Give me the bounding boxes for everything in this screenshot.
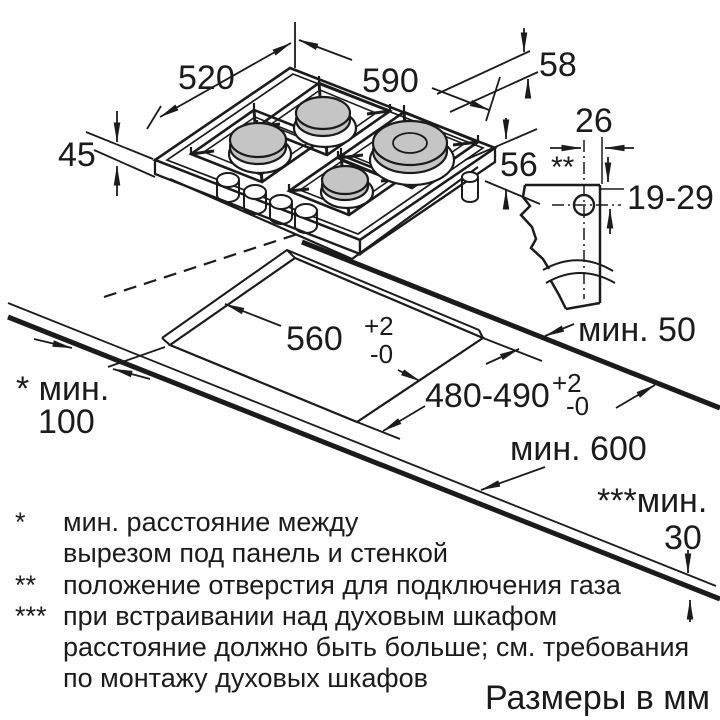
cutout-ext-right <box>483 338 542 361</box>
dim-line-min600b <box>481 467 545 490</box>
dim-line-480b <box>486 349 519 364</box>
label-hob-body-height: 45 <box>58 136 96 174</box>
footnote-3-line-1: при встраивании над духовым шкафом <box>63 601 557 631</box>
label-min-oven-clearance: ***мин. <box>597 482 707 520</box>
dim-line-480a <box>383 406 425 431</box>
dim-line-560a <box>225 304 281 326</box>
installation-diagram: 520 590 58 26 ** 19-29 56 45 560 +2 -0 4… <box>0 0 720 720</box>
label-cutout-width-tol-upper: +2 <box>364 311 394 341</box>
label-hob-width: 590 <box>362 62 419 100</box>
footnote-3-marker: *** <box>15 601 47 631</box>
label-gas-hole-height-range: 19-29 <box>627 179 714 217</box>
dim-ext-45 <box>86 132 155 177</box>
profile-broken-edge-lower <box>551 281 566 309</box>
footnote-1-marker: * <box>15 507 26 537</box>
burner-front <box>321 166 373 208</box>
label-hob-depth: 520 <box>178 59 235 97</box>
hob-foot <box>462 172 478 202</box>
dim-line-590a <box>299 40 352 60</box>
label-hob-total-height: 58 <box>539 46 577 84</box>
burner-right-wok <box>370 121 454 185</box>
footnote-1-line-1: мин. расстояние между <box>63 507 359 537</box>
label-min-worktop-depth: мин. 600 <box>510 430 647 468</box>
dim-line-560b <box>398 370 420 381</box>
dim-line-min600a <box>616 385 655 408</box>
burner-back <box>294 97 356 147</box>
burner-left <box>229 123 291 173</box>
footnote-2-line-1: положение отверстия для подключения газа <box>63 570 622 600</box>
dim-ext-520 <box>147 106 161 129</box>
break-line-1 <box>543 260 613 271</box>
label-min-wall-clearance-value: 100 <box>38 403 95 441</box>
units-caption: Размеры в мм <box>485 679 710 717</box>
cutout-ext-left <box>108 347 165 367</box>
footnote-2-marker: ** <box>15 570 37 600</box>
dim-arrow-min50 <box>545 324 574 336</box>
installation-diagram-page: 520 590 58 26 ** 19-29 56 45 560 +2 -0 4… <box>0 0 720 720</box>
label-min-oven-clearance-value: 30 <box>664 519 702 557</box>
label-cutout-width-tol-lower: -0 <box>370 339 393 369</box>
label-min-to-edge: мин. 50 <box>578 311 696 349</box>
label-cutout-depth-tol-lower: -0 <box>566 391 589 421</box>
dim-ext-58 <box>437 51 538 112</box>
label-cutout-depth: 480-490 <box>425 377 550 415</box>
footnote-3-line-2: расстояние должно быть больше; см. требо… <box>63 632 689 662</box>
projection-dashed-line <box>104 228 316 297</box>
label-cutout-width: 560 <box>286 320 343 358</box>
footnote-3-line-3: по монтажу духовых шкафов <box>63 663 428 693</box>
label-built-in-depth: 56 <box>500 146 538 184</box>
label-gas-hole-offset: 26 <box>575 102 613 140</box>
break-line-2 <box>546 273 615 283</box>
label-gas-hole-marker: ** <box>551 151 575 184</box>
footnote-1-line-2: вырезом под панель и стенкой <box>63 538 448 568</box>
dim-ext-590 <box>486 77 500 121</box>
